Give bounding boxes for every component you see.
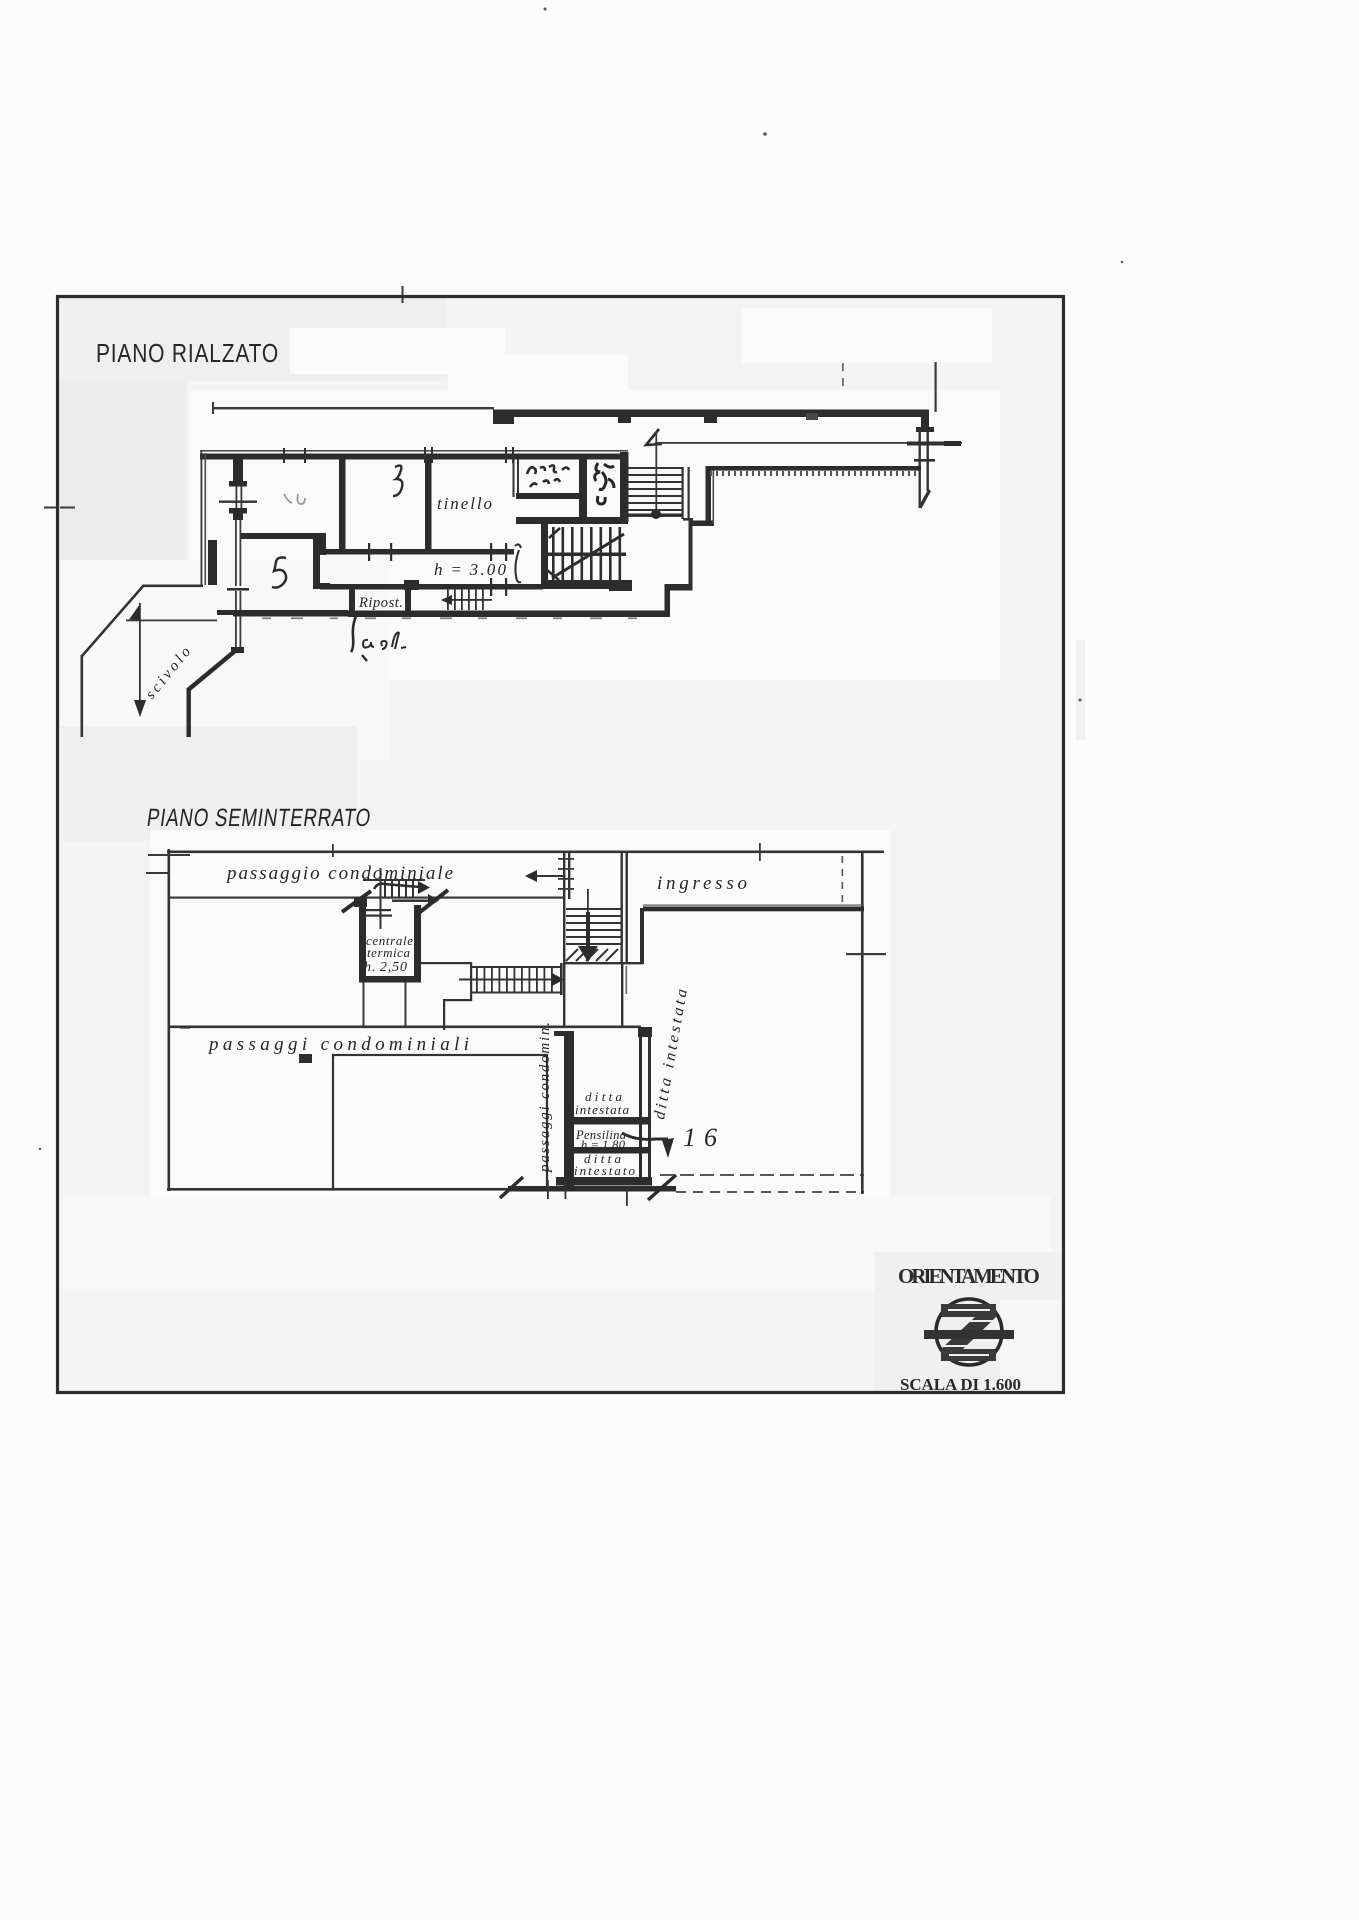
svg-text:intestata: intestata <box>575 1102 630 1117</box>
svg-text:Ripost.: Ripost. <box>358 595 403 611</box>
svg-text:PIANO SEMINTERRATO: PIANO SEMINTERRATO <box>145 804 373 832</box>
svg-text:passaggi condomin.: passaggi condomin. <box>537 1022 553 1173</box>
svg-text:termica: termica <box>367 945 411 960</box>
svg-text:intestato: intestato <box>574 1163 636 1178</box>
svg-text:SCALA DI 1.600: SCALA DI 1.600 <box>900 1375 1022 1394</box>
svg-text:h. 2,50: h. 2,50 <box>364 960 407 975</box>
svg-text:ingresso: ingresso <box>657 873 747 894</box>
svg-text:PIANO RIALZATO: PIANO RIALZATO <box>96 338 279 368</box>
svg-text:tinello: tinello <box>437 494 492 513</box>
svg-text:ORIENTAMENTO: ORIENTAMENTO <box>898 1264 1041 1288</box>
svg-text:h = 1.80: h = 1.80 <box>581 1138 626 1152</box>
